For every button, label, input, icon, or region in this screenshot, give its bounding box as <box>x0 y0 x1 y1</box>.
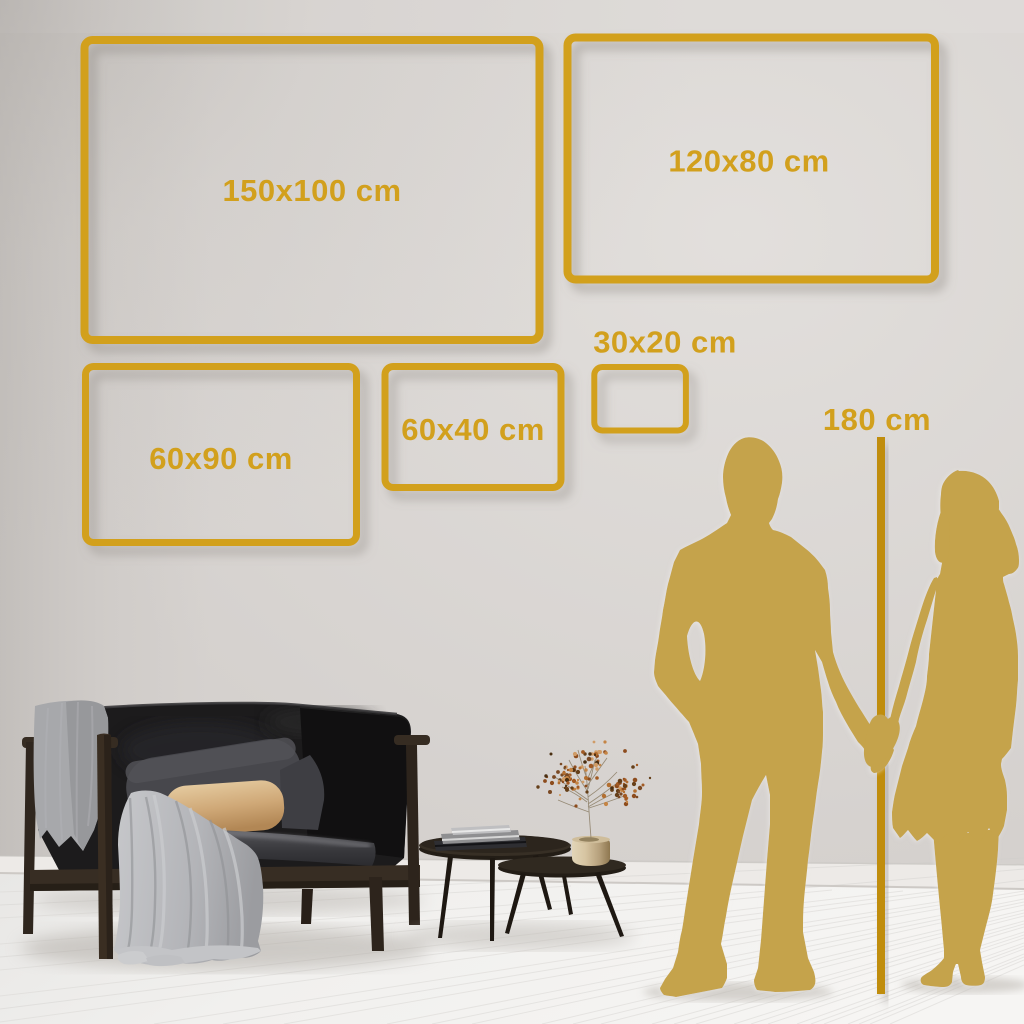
svg-text:180 cm: 180 cm <box>823 402 931 437</box>
svg-text:60x90 cm: 60x90 cm <box>149 441 293 476</box>
svg-text:150x100 cm: 150x100 cm <box>222 173 401 208</box>
svg-text:120x80 cm: 120x80 cm <box>668 144 829 179</box>
svg-text:60x40 cm: 60x40 cm <box>401 412 545 447</box>
svg-text:30x20 cm: 30x20 cm <box>593 325 737 360</box>
